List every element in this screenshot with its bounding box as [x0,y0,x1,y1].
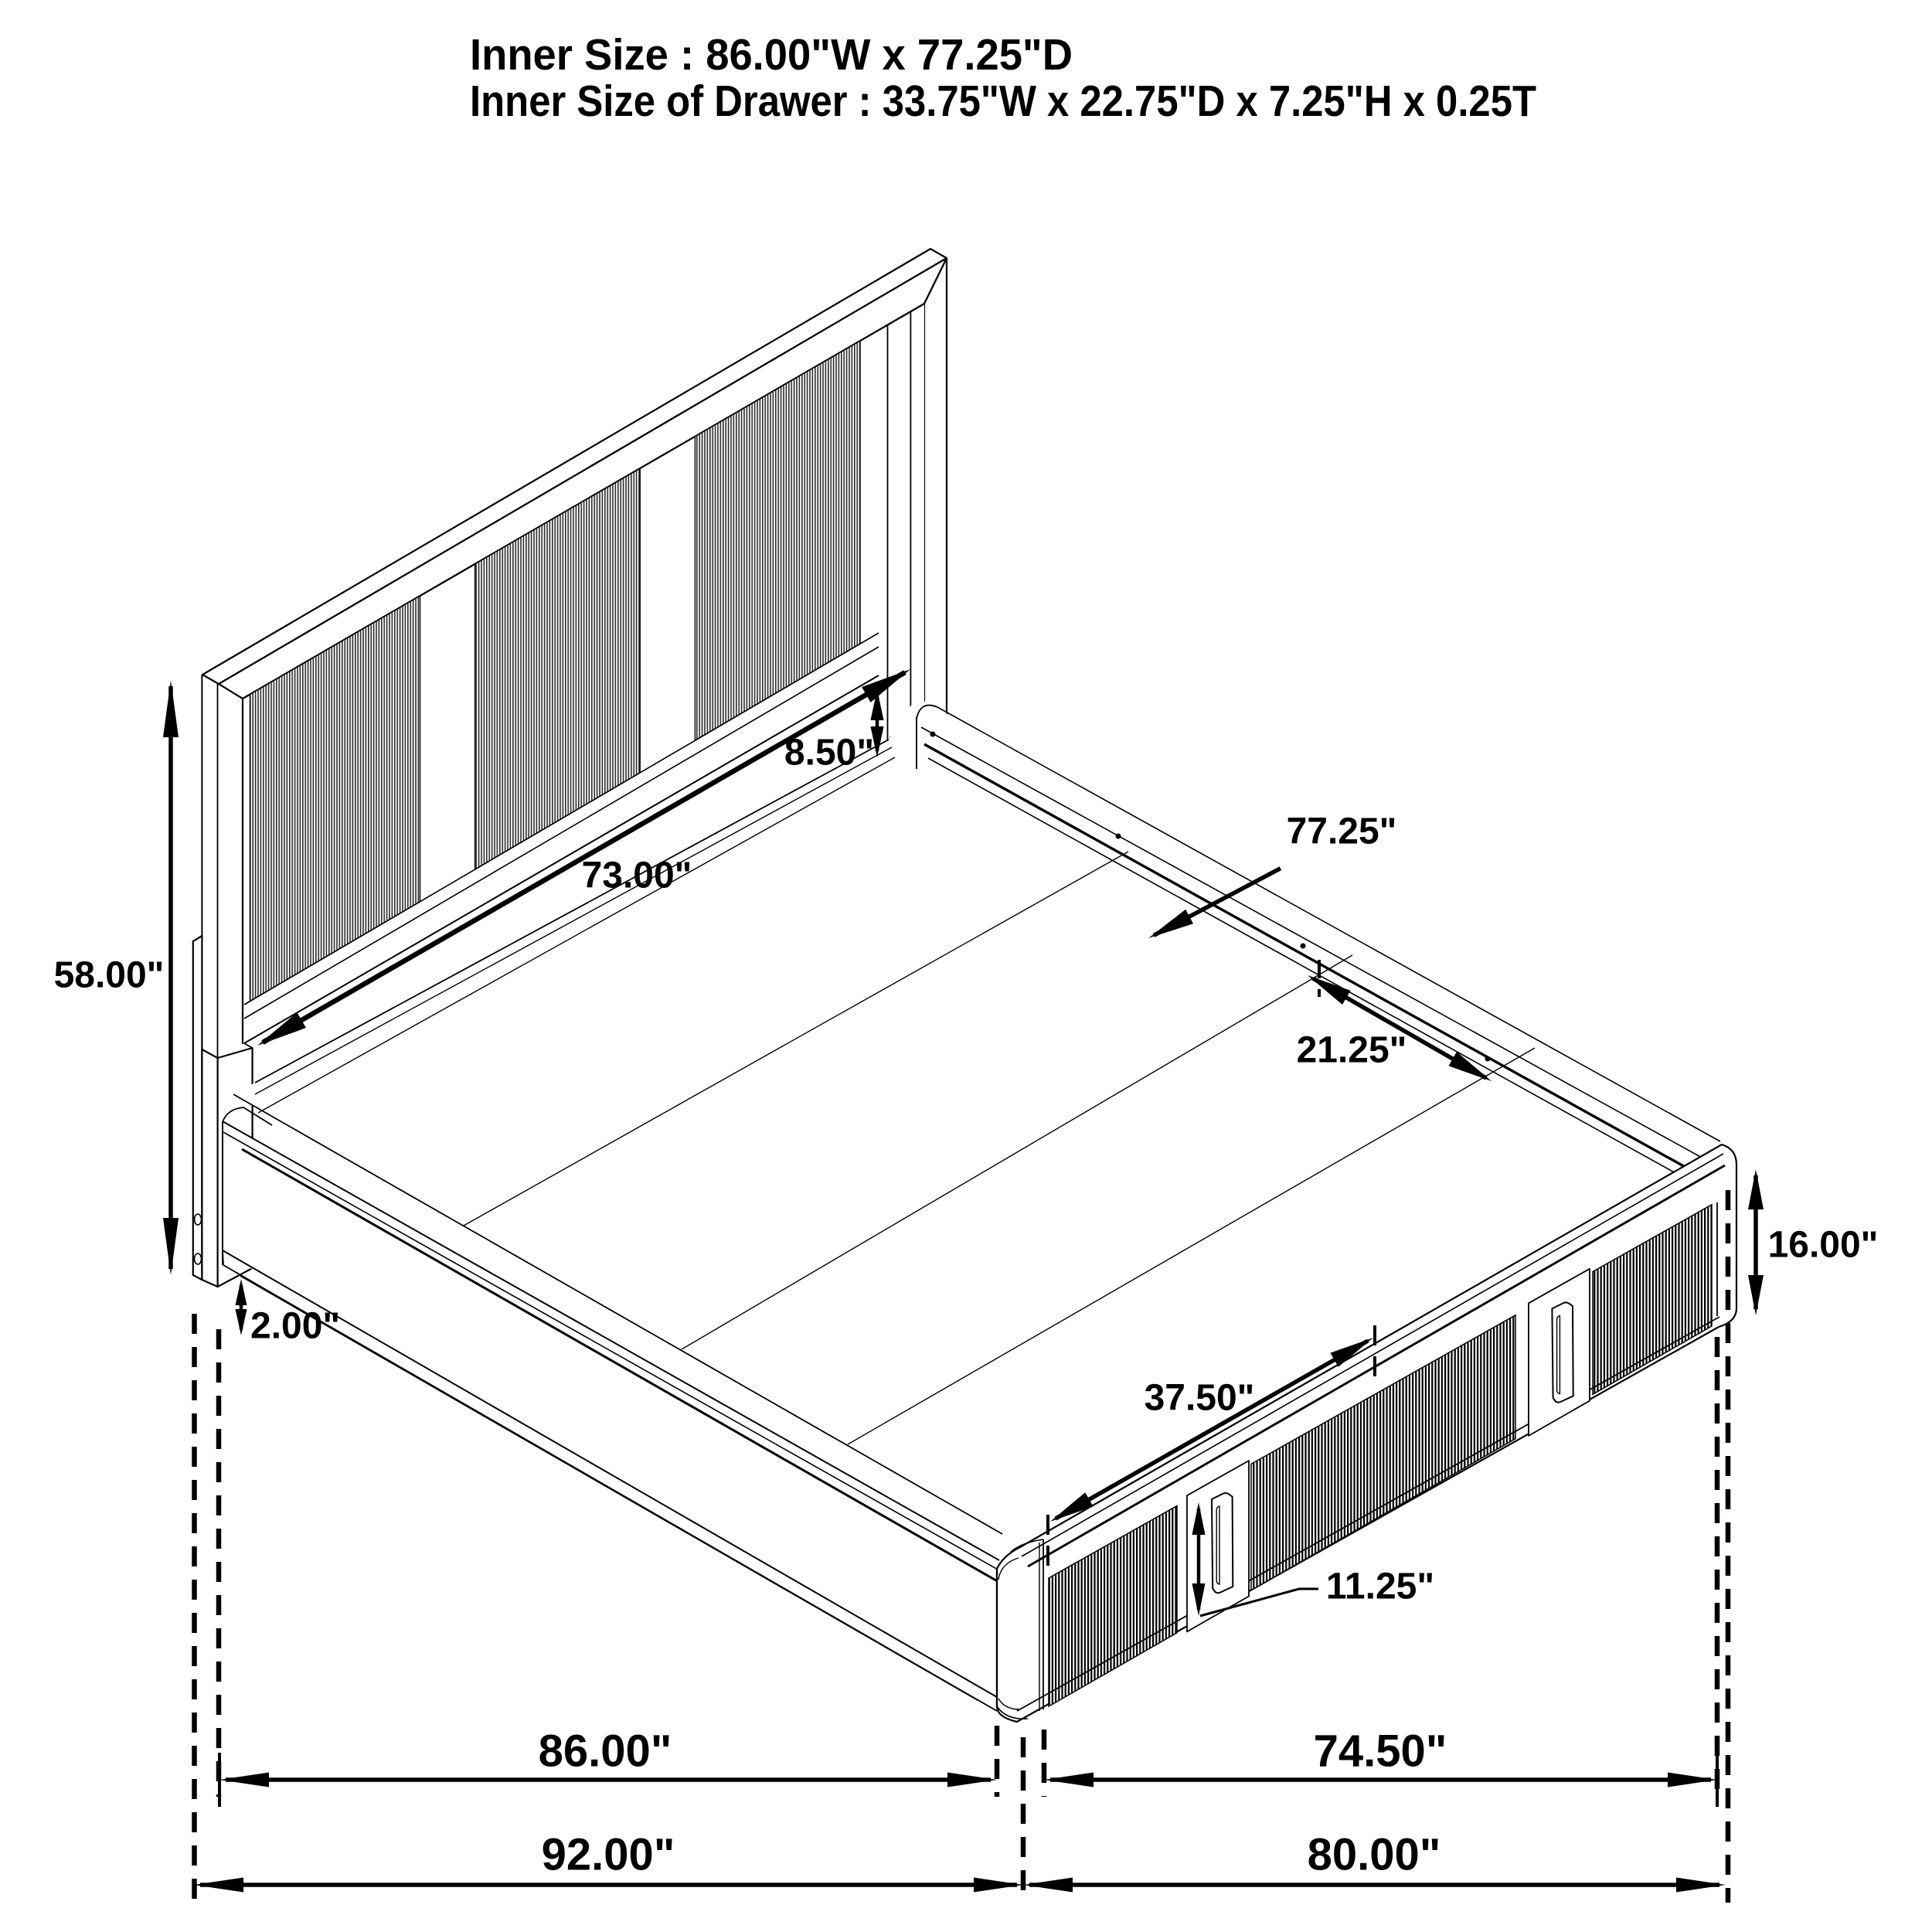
svg-text:Inner Size of Drawer : 33.75"W: Inner Size of Drawer : 33.75"W x 22.75"D… [470,77,1536,126]
svg-text:8.50": 8.50" [784,733,874,774]
svg-text:21.25": 21.25" [1297,1030,1407,1071]
svg-text:Inner Size : 86.00"W x 77.25"D: Inner Size : 86.00"W x 77.25"D [470,30,1073,80]
svg-text:16.00": 16.00" [1768,1225,1879,1266]
svg-text:11.25": 11.25" [1326,1566,1434,1607]
svg-text:73.00": 73.00" [582,855,692,896]
svg-text:74.50": 74.50" [1314,1726,1447,1776]
svg-text:37.50": 37.50" [1145,1378,1255,1419]
svg-text:77.25": 77.25" [1287,811,1397,852]
svg-text:92.00": 92.00" [542,1829,675,1879]
svg-text:86.00": 86.00" [539,1726,672,1776]
svg-text:2.00": 2.00" [250,1306,340,1347]
svg-text:58.00": 58.00" [54,955,165,996]
svg-text:80.00": 80.00" [1308,1829,1441,1879]
